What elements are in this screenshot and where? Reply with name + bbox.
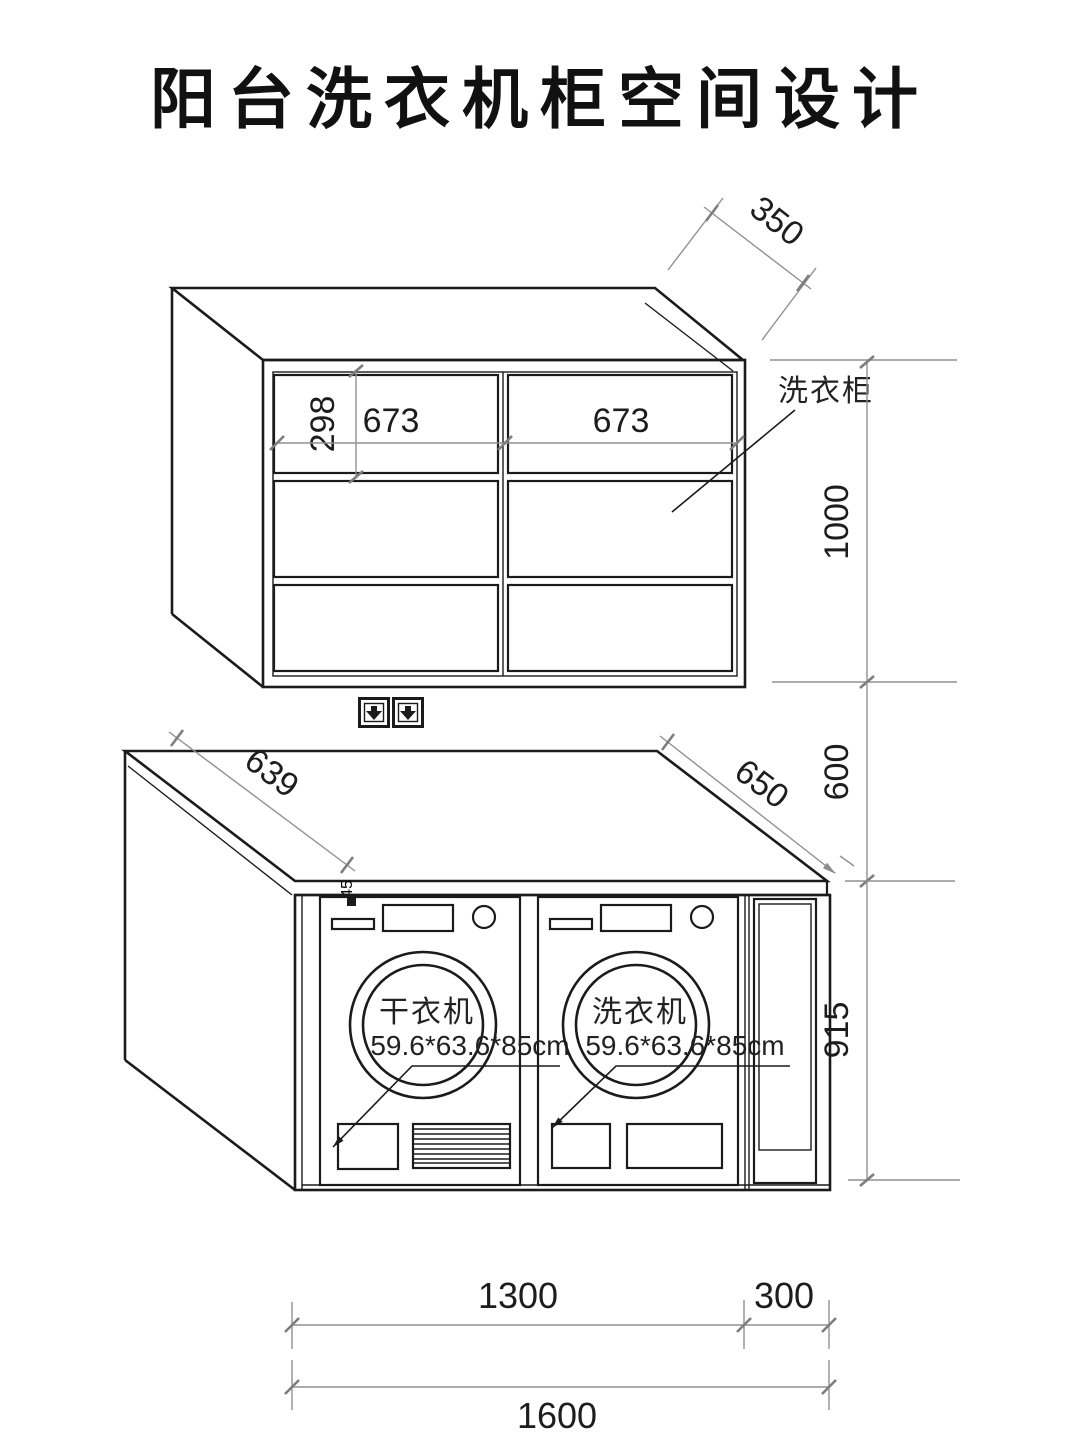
dim-text-1600: 1600 bbox=[517, 1395, 597, 1436]
down-arrow-icon bbox=[366, 706, 382, 720]
counter-top-face bbox=[125, 751, 827, 881]
flip-down-door-icon bbox=[394, 699, 423, 727]
label-washing-cabinet: 洗衣柜 bbox=[778, 375, 874, 408]
dryer-detergent-slot bbox=[332, 919, 374, 929]
side-cabinet-door-panel bbox=[759, 904, 811, 1150]
upper-cabinet-front-inner-frame bbox=[273, 372, 737, 676]
washer-knob bbox=[691, 906, 713, 928]
dim-text-915: 915 bbox=[818, 1002, 856, 1059]
dim-bottom-widths: 1300 300 1600 bbox=[285, 1275, 836, 1436]
washer-kick-panel bbox=[627, 1124, 722, 1168]
dryer-filter-panel bbox=[338, 1124, 398, 1169]
flip-down-door-icon bbox=[360, 699, 389, 727]
dryer-display bbox=[383, 905, 453, 931]
dim-lower-height-915: 915 bbox=[818, 881, 960, 1186]
dryer-machine: 干衣机 59.6*63.6*85cm bbox=[320, 897, 570, 1185]
upper-cabinet-left-bottom-edge bbox=[172, 614, 263, 687]
door-panel bbox=[274, 481, 498, 577]
dim-top-row-298: 298 bbox=[304, 365, 363, 483]
hinge-mark bbox=[347, 897, 356, 906]
washer-display bbox=[601, 905, 671, 931]
dim-text-673-left: 673 bbox=[363, 402, 420, 440]
door-panel bbox=[274, 585, 498, 671]
dryer-size-text: 59.6*63.6*85cm bbox=[370, 1030, 569, 1061]
balcony-laundry-cabinet-drawing: 阳台洗衣机柜空间设计 bbox=[0, 0, 1080, 1440]
door-panel bbox=[508, 585, 732, 671]
washer-label: 洗衣机 bbox=[592, 996, 688, 1029]
dim-text-298: 298 bbox=[304, 396, 342, 453]
dryer-vent-grille bbox=[413, 1124, 510, 1168]
dim-text-1000: 1000 bbox=[818, 484, 856, 560]
label-leader-line bbox=[672, 410, 795, 512]
upper-cabinet-top-face bbox=[172, 288, 743, 360]
dryer-knob bbox=[473, 906, 495, 928]
washer-machine: 洗衣机 59.6*63.6*85cm bbox=[538, 897, 790, 1185]
dryer-label: 干衣机 bbox=[379, 996, 475, 1029]
upper-cabinet bbox=[172, 288, 745, 687]
lower-left-bottom-edge bbox=[125, 1060, 295, 1190]
dim-gap-600: 600 bbox=[818, 682, 874, 887]
dryer-leader-line bbox=[333, 1066, 560, 1147]
down-arrow-icon bbox=[400, 706, 416, 720]
lower-unit: 45 bbox=[125, 751, 830, 1190]
dim-text-1300: 1300 bbox=[478, 1275, 558, 1316]
dim-text-600: 600 bbox=[818, 744, 856, 801]
door-panel bbox=[508, 481, 732, 577]
washer-filter-panel bbox=[552, 1124, 610, 1168]
dim-text-300: 300 bbox=[754, 1275, 814, 1316]
technical-drawing-canvas: 350 298 673 673 洗衣柜 bbox=[0, 0, 1080, 1440]
dim-text-673-right: 673 bbox=[593, 402, 650, 440]
washer-detergent-slot bbox=[550, 919, 592, 929]
dim-text-650: 650 bbox=[728, 752, 796, 816]
